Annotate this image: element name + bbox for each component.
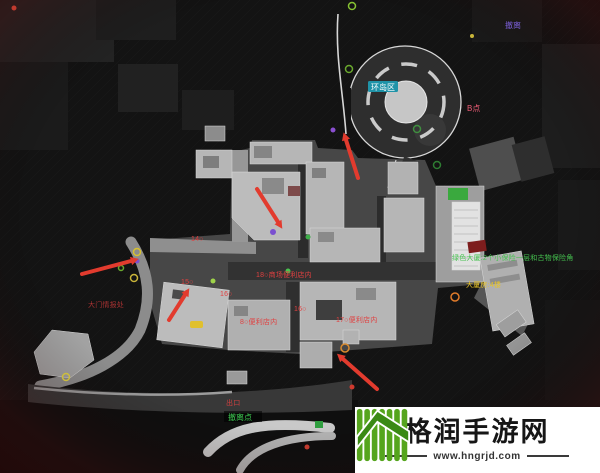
- game-map-screenshot: 大门情报处 14○ 15○ 16○ 16○ 18○商场便利店内 8○便利店内 1…: [0, 0, 600, 473]
- label-shop-8: 8○便利店内: [240, 317, 277, 326]
- site-name: 格润手游网: [405, 418, 550, 448]
- site-logo-icon: [355, 407, 411, 463]
- label-point-b: B点: [467, 104, 480, 113]
- label-shop-18: 18○商场便利店内: [256, 270, 312, 279]
- site-url: www.hngrjd.com: [433, 451, 520, 462]
- vignette-overlay: [0, 0, 600, 473]
- dot-green-icon: [306, 235, 311, 240]
- dot-green-icon: [211, 279, 216, 284]
- dot-red-icon: [12, 6, 17, 11]
- dot-red-icon: [350, 385, 355, 390]
- label-tower-note: 大厦房:4楼: [466, 280, 501, 289]
- dot-yellow-icon: [470, 34, 474, 38]
- dot-purple-icon: [270, 229, 276, 235]
- label-marker-16b: 16○: [294, 306, 307, 313]
- dot-red-icon: [305, 445, 310, 450]
- label-green-building: 绿色大厦:2个小保险一层和古物保险角: [452, 253, 573, 262]
- pill-yellow-icon: [190, 321, 203, 328]
- label-exit-south-small: 出口: [226, 398, 240, 407]
- square-green-icon: [315, 421, 323, 428]
- label-exit-northeast: 撤离: [505, 20, 521, 30]
- label-shop-17: 17○便利店内: [336, 315, 377, 324]
- label-marker-16: 16○: [220, 291, 233, 298]
- watermark-card: 格润手游网 www.hngrjd.com: [355, 407, 600, 473]
- dot-purple-icon: [331, 128, 336, 133]
- label-marker-14: 14○: [191, 236, 204, 243]
- region-badge-label: 环岛区: [371, 82, 395, 92]
- map-canvas: 大门情报处 14○ 15○ 16○ 16○ 18○商场便利店内 8○便利店内 1…: [0, 0, 600, 473]
- site-url-row: www.hngrjd.com: [385, 451, 568, 462]
- url-divider-line: [527, 455, 569, 457]
- label-gate-note: 大门情报处: [88, 300, 124, 309]
- label-exit-south: 撤离点: [228, 412, 252, 422]
- label-marker-15: 15○: [181, 279, 194, 286]
